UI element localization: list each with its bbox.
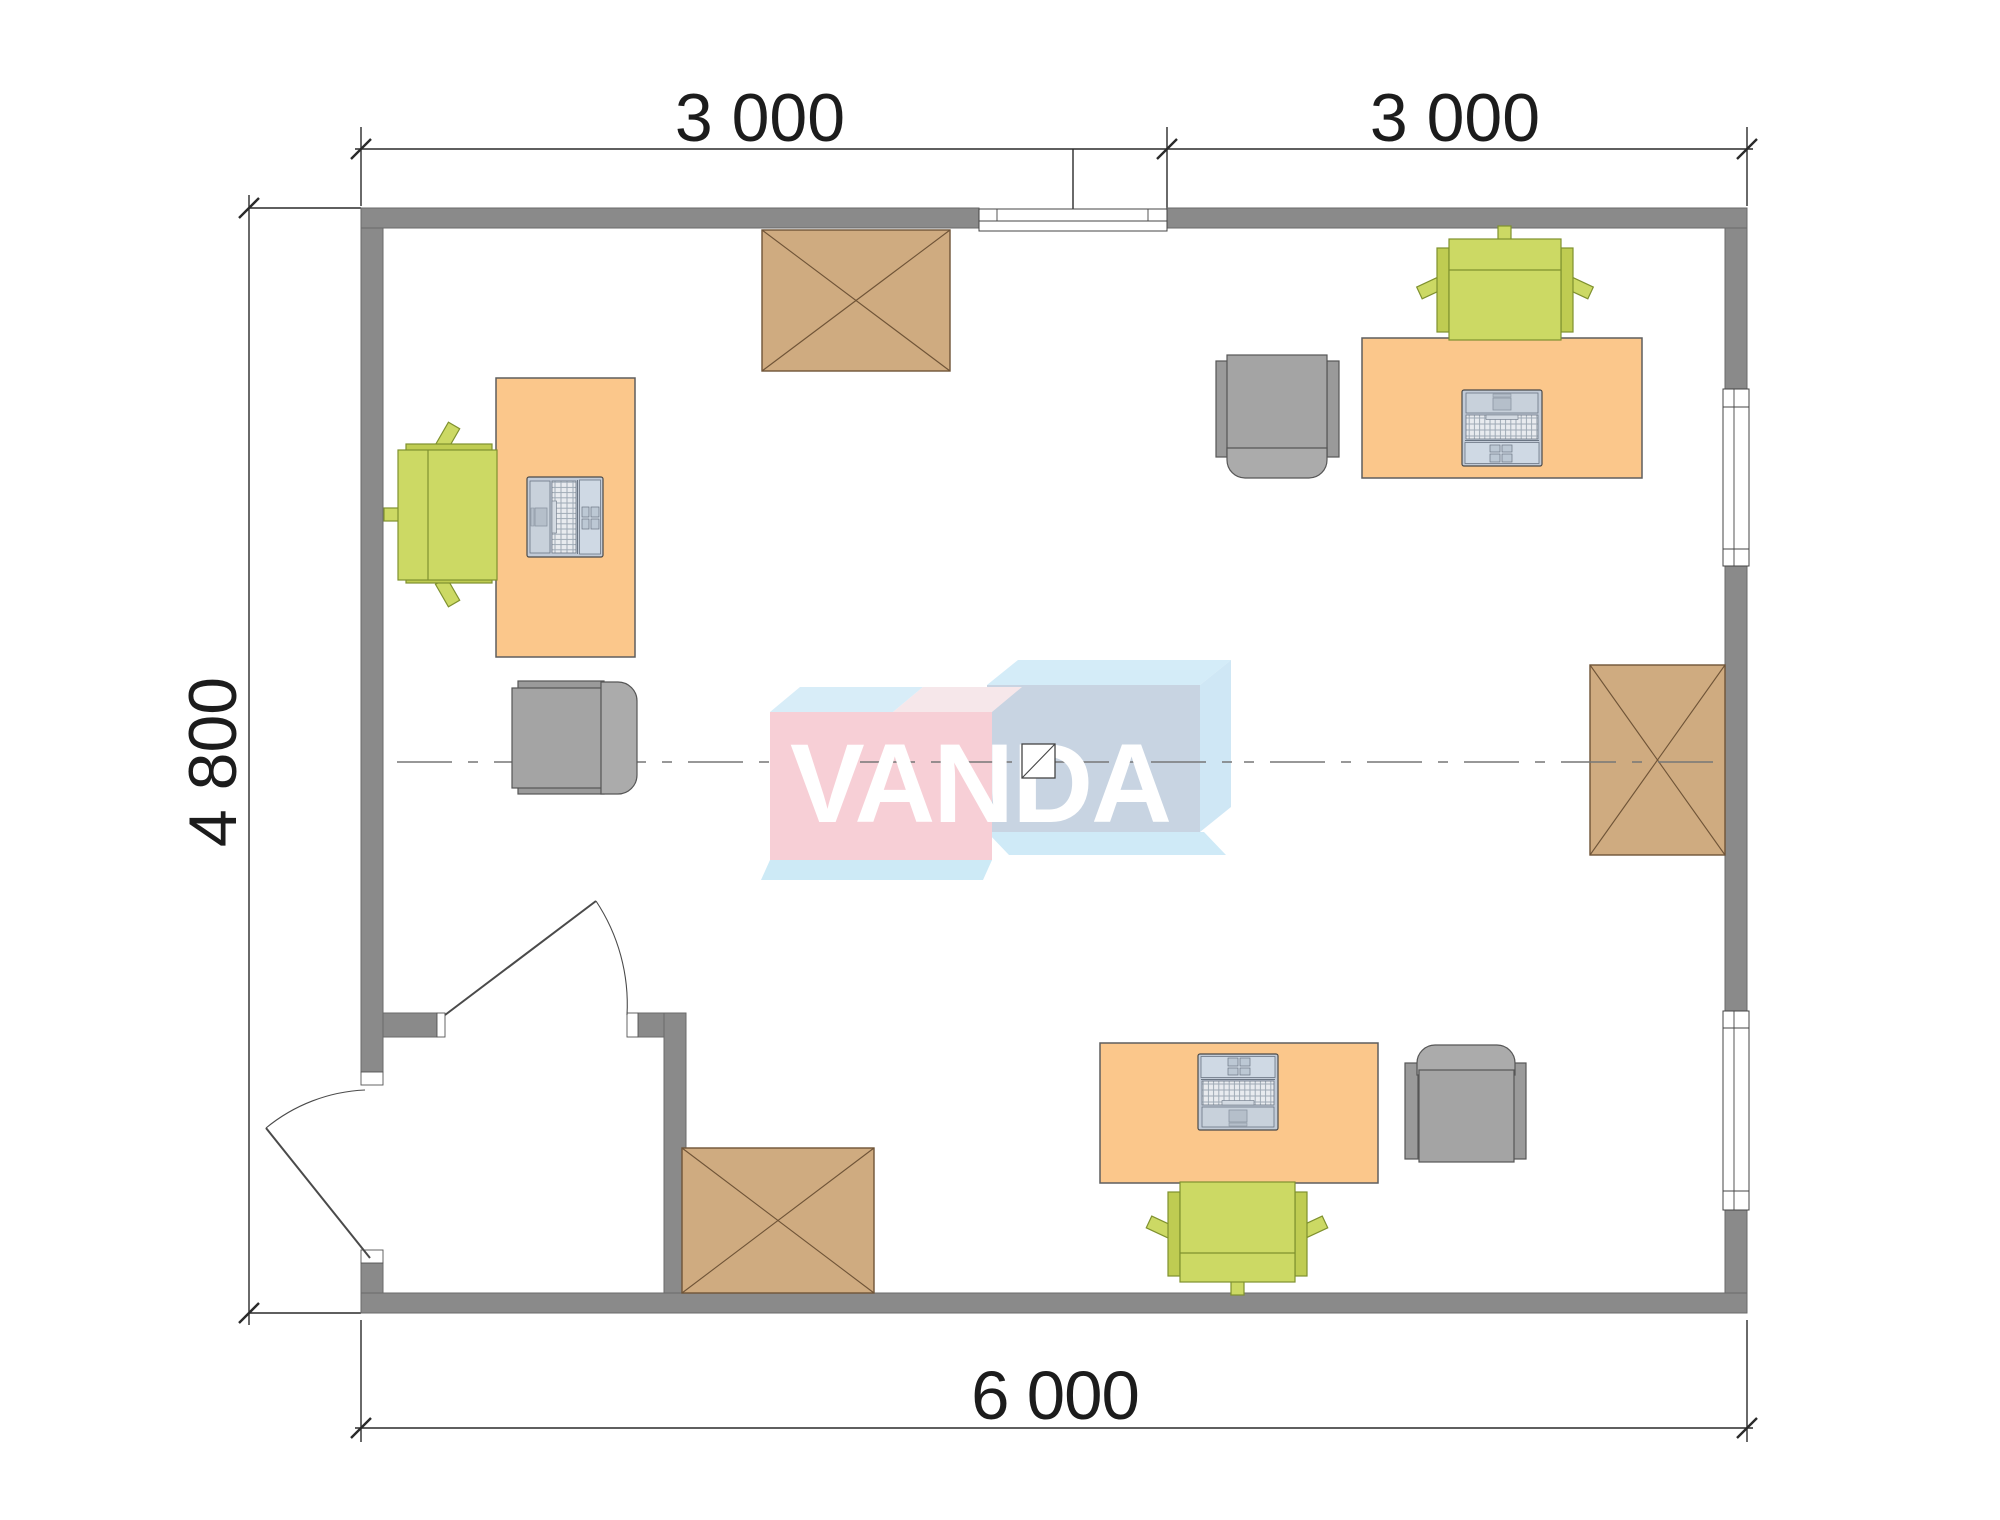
laptop-icon	[527, 477, 603, 557]
table-right-middle	[1590, 665, 1725, 855]
logo-text: VANDA	[790, 721, 1170, 846]
wall-right-upper	[1725, 228, 1747, 389]
wall-top-left	[361, 208, 979, 228]
floor-plan-canvas: 3 000 3 000 4 800 6 000	[0, 0, 2000, 1520]
window-right-upper	[1723, 389, 1749, 566]
laptop-icon	[1198, 1054, 1278, 1130]
window-top	[979, 209, 1167, 231]
armchair-mid-left	[512, 681, 637, 794]
table-top-middle	[762, 230, 950, 371]
section-marker	[1022, 744, 1055, 778]
table-bottom-left	[682, 1148, 874, 1293]
dimension-bottom-label: 6 000	[971, 1357, 1139, 1434]
floor-plan-drawing: 3 000 3 000 4 800 6 000	[0, 0, 2000, 1520]
laptop-icon	[1462, 390, 1542, 466]
dimension-left-label: 4 800	[175, 677, 251, 847]
wall-right-middle	[1725, 566, 1747, 1011]
wall-left	[361, 228, 383, 1072]
dimension-top-right-label: 3 000	[1370, 80, 1540, 156]
wall-left-stub	[361, 1263, 383, 1293]
armchair-bottom	[1405, 1045, 1526, 1162]
armchair-top-right	[1216, 355, 1339, 478]
wall-bottom	[361, 1293, 1747, 1313]
wall-top-right	[1167, 208, 1747, 228]
dimension-top-left-label: 3 000	[675, 80, 845, 156]
wall-right-lower	[1725, 1210, 1747, 1293]
window-right-lower	[1723, 1011, 1749, 1210]
wall-partition-left	[383, 1013, 437, 1037]
chair-green-top-left	[384, 422, 497, 607]
